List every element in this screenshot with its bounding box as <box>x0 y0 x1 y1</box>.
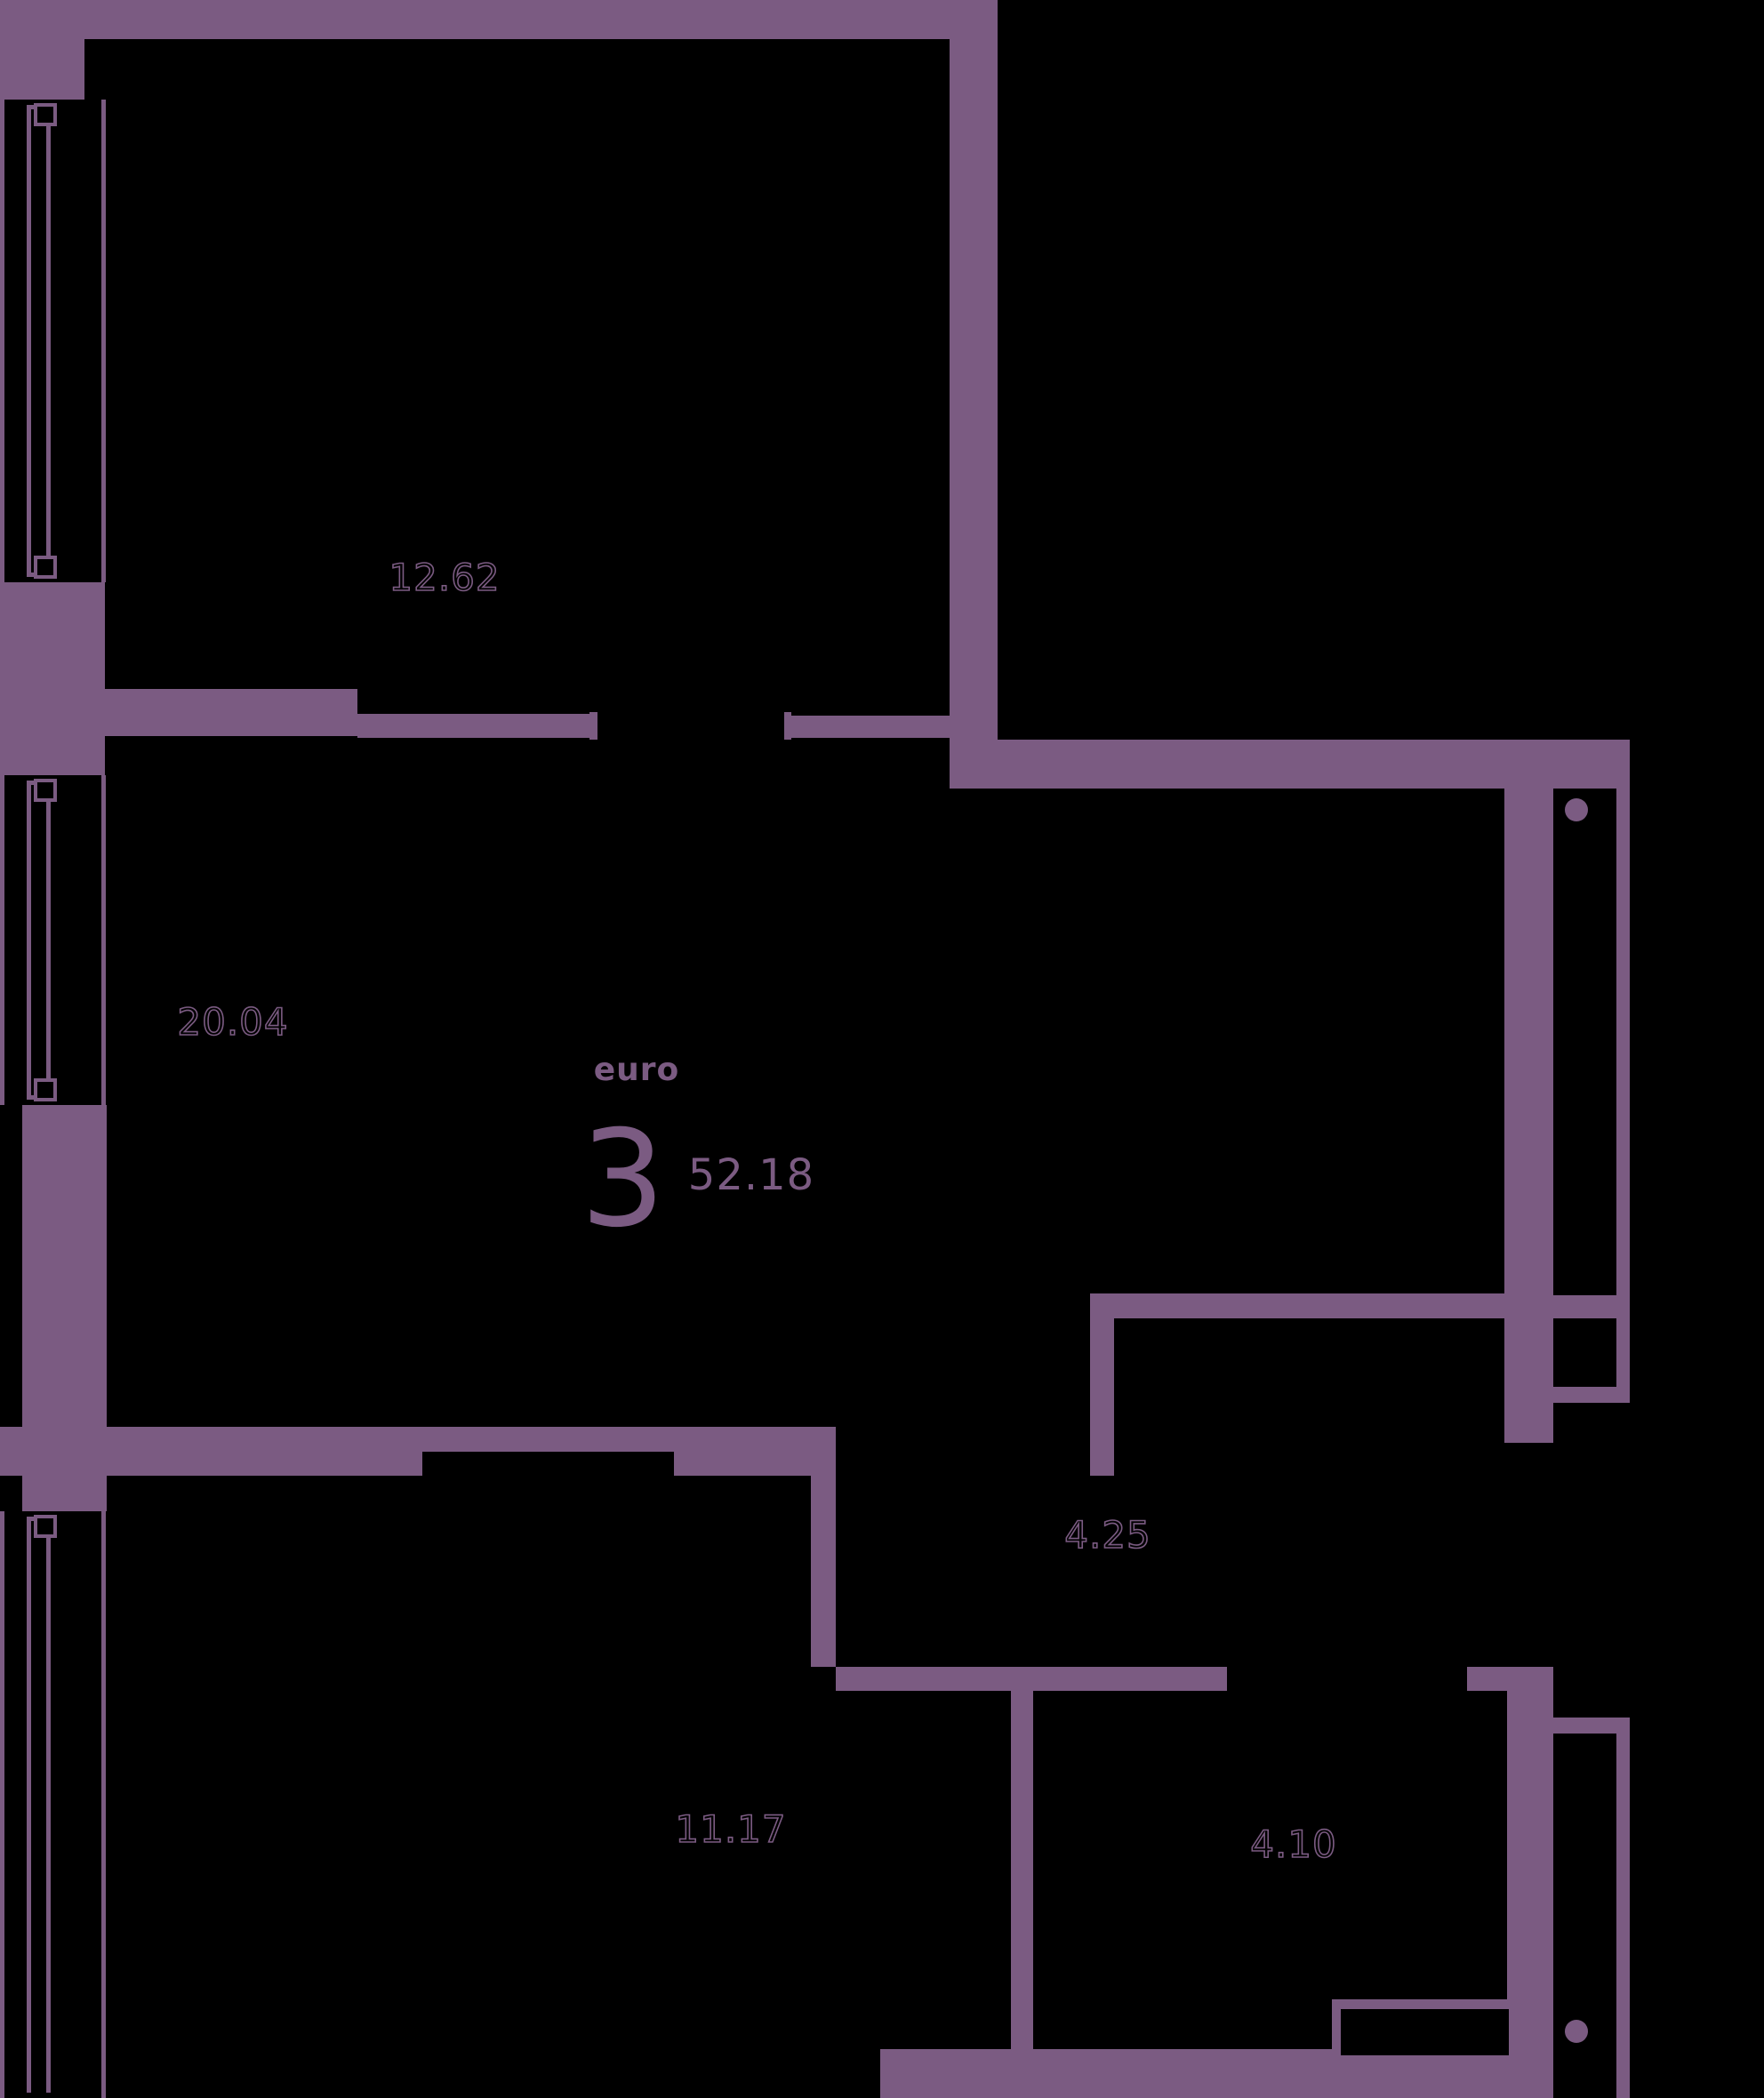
total-area-label: 52.18 <box>688 1154 814 1197</box>
window-sill-box <box>34 779 57 802</box>
wall-segment <box>1467 1667 1507 1691</box>
window-frame-line <box>46 105 51 577</box>
niche-cutout <box>1341 2009 1509 2055</box>
room-area-20-04-label: 20.04 <box>177 1004 288 1041</box>
window-inner-face-line <box>101 100 106 582</box>
bath-area-4-10-label: 4.10 <box>1250 1826 1337 1863</box>
room-count-label: 3 <box>581 1113 666 1246</box>
window-inner-face-line <box>101 775 106 1105</box>
wall-segment <box>22 1476 107 1511</box>
wall-segment <box>811 1476 836 1667</box>
window-sill-box <box>34 103 57 126</box>
wall-segment <box>422 1427 674 1452</box>
window-frame-line <box>27 1517 31 2093</box>
window-outer-face-line <box>0 100 4 582</box>
window-outer-face-line <box>0 775 4 1105</box>
room-area-12-62-label: 12.62 <box>389 559 500 597</box>
window-inner-face-line <box>101 1511 106 2098</box>
wall-segment <box>1332 1999 1509 2009</box>
wall-segment <box>1553 1387 1630 1403</box>
plan-type-label: euro <box>594 1054 680 1086</box>
window-frame-line <box>27 781 31 1100</box>
room-area-11-17-label: 11.17 <box>675 1811 786 1848</box>
wall-segment <box>791 716 950 738</box>
wall-segment <box>1553 1718 1630 1734</box>
wall-segment <box>0 1427 422 1476</box>
wall-segment <box>1090 1293 1114 1476</box>
vent-circle <box>1565 798 1588 821</box>
wall-segment <box>836 1667 1227 1691</box>
wall-segment <box>105 689 357 736</box>
wall-segment <box>0 0 84 100</box>
wall-segment <box>674 1427 836 1476</box>
wall-segment <box>0 0 998 39</box>
wall-segment <box>1507 1667 1553 2098</box>
wall-segment <box>1553 1295 1630 1318</box>
wall-segment <box>357 714 589 738</box>
wall-segment <box>950 740 1630 789</box>
window-sill-box <box>34 1078 57 1101</box>
window-outer-face-line <box>0 1511 4 2098</box>
wall-segment <box>1332 1999 1341 2055</box>
window-sill-box <box>34 1515 57 1538</box>
window-frame-line <box>46 781 51 1100</box>
wall-segment <box>950 39 998 789</box>
floor-plan: 12.6220.04euro352.184.2511.174.10 <box>0 0 1764 2098</box>
wall-segment <box>22 1105 107 1427</box>
vent-circle <box>1565 2020 1588 2043</box>
wall-segment <box>1504 789 1553 1443</box>
wall-segment <box>880 2049 1553 2098</box>
window-sill-box <box>34 556 57 579</box>
window-frame-line <box>46 1517 51 2093</box>
wall-segment <box>1011 1691 1033 2051</box>
wall-segment <box>589 712 597 740</box>
hall-area-4-25-label: 4.25 <box>1064 1517 1151 1554</box>
wall-segment <box>0 582 105 775</box>
wall-segment <box>1616 1734 1630 2098</box>
wall-segment <box>784 712 791 740</box>
wall-segment <box>1090 1293 1505 1318</box>
window-frame-line <box>27 105 31 577</box>
